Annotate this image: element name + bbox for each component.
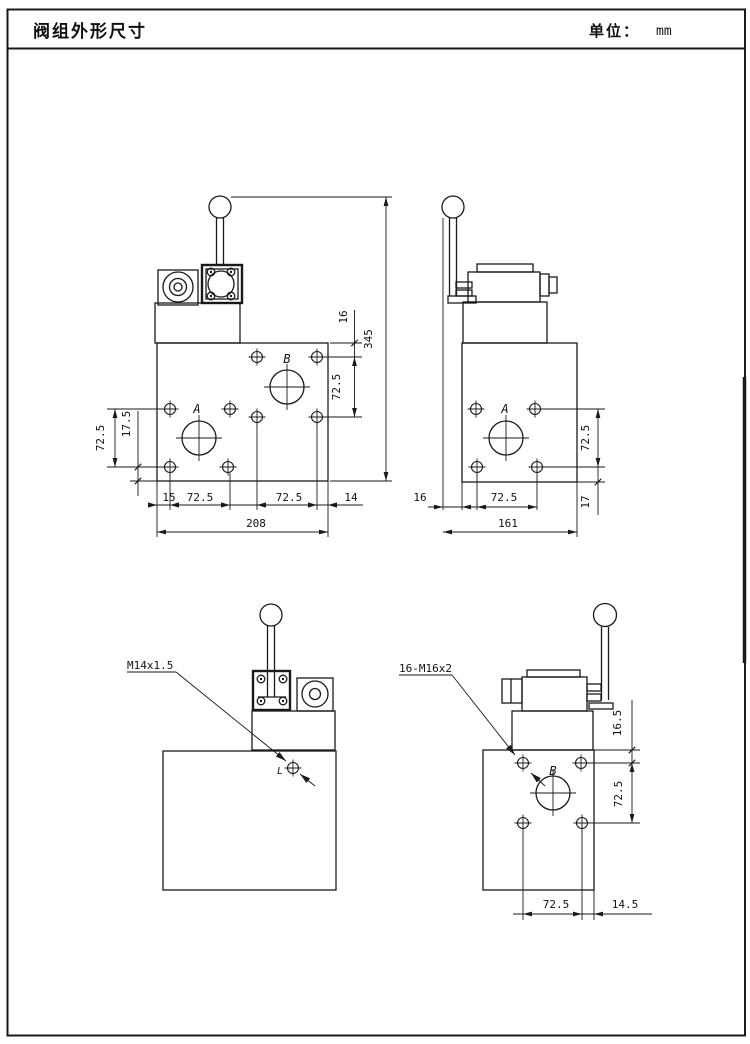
- unit-label: 单位：: [589, 22, 640, 40]
- dim-left-hole-spacing: 72.5: [94, 425, 107, 452]
- front-holes: A B: [162, 349, 326, 476]
- dim-hole-span: 72.5: [543, 898, 570, 911]
- dim-hole-to-bottom: 17.5: [120, 411, 133, 438]
- side-b-lever: [587, 604, 617, 710]
- unit-value: mm: [656, 24, 672, 39]
- dim-hole-to-bottom: 17: [579, 495, 592, 508]
- port-a-label: A: [192, 402, 200, 416]
- lever-ball: [209, 196, 231, 218]
- dim-a-hole-span: 72.5: [187, 491, 214, 504]
- drawing-sheet: 阀组外形尺寸 单位： mm: [0, 0, 750, 1044]
- side-lever: [442, 196, 476, 303]
- front-valve-base: [155, 303, 240, 343]
- side-b-dimensions: 16.5 72.5 72.5 14.5: [513, 700, 652, 920]
- dim-lever-to-edge: 16: [413, 491, 426, 504]
- front-view: A B 72.5 17.5: [94, 196, 392, 537]
- side-b-holes: B: [515, 755, 591, 832]
- thread-callout-label: M14x1.5: [127, 659, 173, 672]
- side-valve-base: [463, 302, 547, 343]
- dim-overall-height: 345: [362, 329, 375, 349]
- dim-hole-spacing: 72.5: [612, 781, 625, 808]
- rear-gauge-boss: [297, 678, 333, 711]
- port-l-label: L: [277, 766, 283, 777]
- rear-block: [163, 751, 336, 890]
- lever-ball: [442, 196, 464, 218]
- side-b-valve-base: [512, 711, 593, 750]
- page-title: 阀组外形尺寸: [33, 21, 147, 41]
- technical-drawing: 阀组外形尺寸 单位： mm: [0, 0, 750, 1044]
- dim-right-margin: 14: [344, 491, 358, 504]
- rear-lever: [260, 604, 282, 697]
- dim-b-hole-span: 72.5: [276, 491, 303, 504]
- dim-hole-span: 72.5: [491, 491, 518, 504]
- rear-port-hole: L: [277, 760, 302, 778]
- port-b-label: B: [549, 764, 556, 778]
- side-valve-body: [468, 264, 557, 302]
- rear-valve-base: [252, 711, 335, 750]
- front-lever-base: [202, 265, 242, 303]
- side-b-view: B 16-M16x2 16.5 72.5 72.5: [399, 604, 652, 921]
- dim-top-to-hole: 16.5: [611, 710, 624, 737]
- side-holes: A: [468, 401, 546, 476]
- rear-lever-bracket: [253, 671, 290, 710]
- side-b-valve-body: [502, 670, 587, 711]
- dim-overall-width: 208: [246, 517, 266, 530]
- lever-ball: [594, 604, 617, 627]
- dim-top-to-hole: 16: [337, 310, 350, 323]
- dim-left-margin: 15: [162, 491, 175, 504]
- dim-hole-spacing: 72.5: [579, 425, 592, 452]
- side-view: A 16 72.5 161 72.5 1: [413, 196, 605, 537]
- dim-overall-width: 161: [498, 517, 518, 530]
- dim-right-margin: 14.5: [612, 898, 639, 911]
- thread-callout-label: 16-M16x2: [399, 662, 452, 675]
- front-block: [157, 343, 328, 481]
- front-dimensions: 72.5 17.5 15 72.5 72.5 14: [94, 197, 392, 537]
- front-lever: [209, 196, 231, 265]
- dim-right-hole-spacing: 72.5: [330, 374, 343, 401]
- side-block: [462, 343, 577, 482]
- lever-ball: [260, 604, 282, 626]
- port-b-label: B: [283, 352, 290, 366]
- sheet-frame: [8, 10, 746, 1036]
- front-gauge-boss: [158, 270, 198, 305]
- port-a-label: A: [500, 402, 508, 416]
- rear-view: L M14x1.5: [127, 604, 336, 890]
- side-dimensions: 16 72.5 161 72.5 17: [413, 218, 605, 537]
- title-bar: 阀组外形尺寸 单位： mm: [33, 21, 672, 41]
